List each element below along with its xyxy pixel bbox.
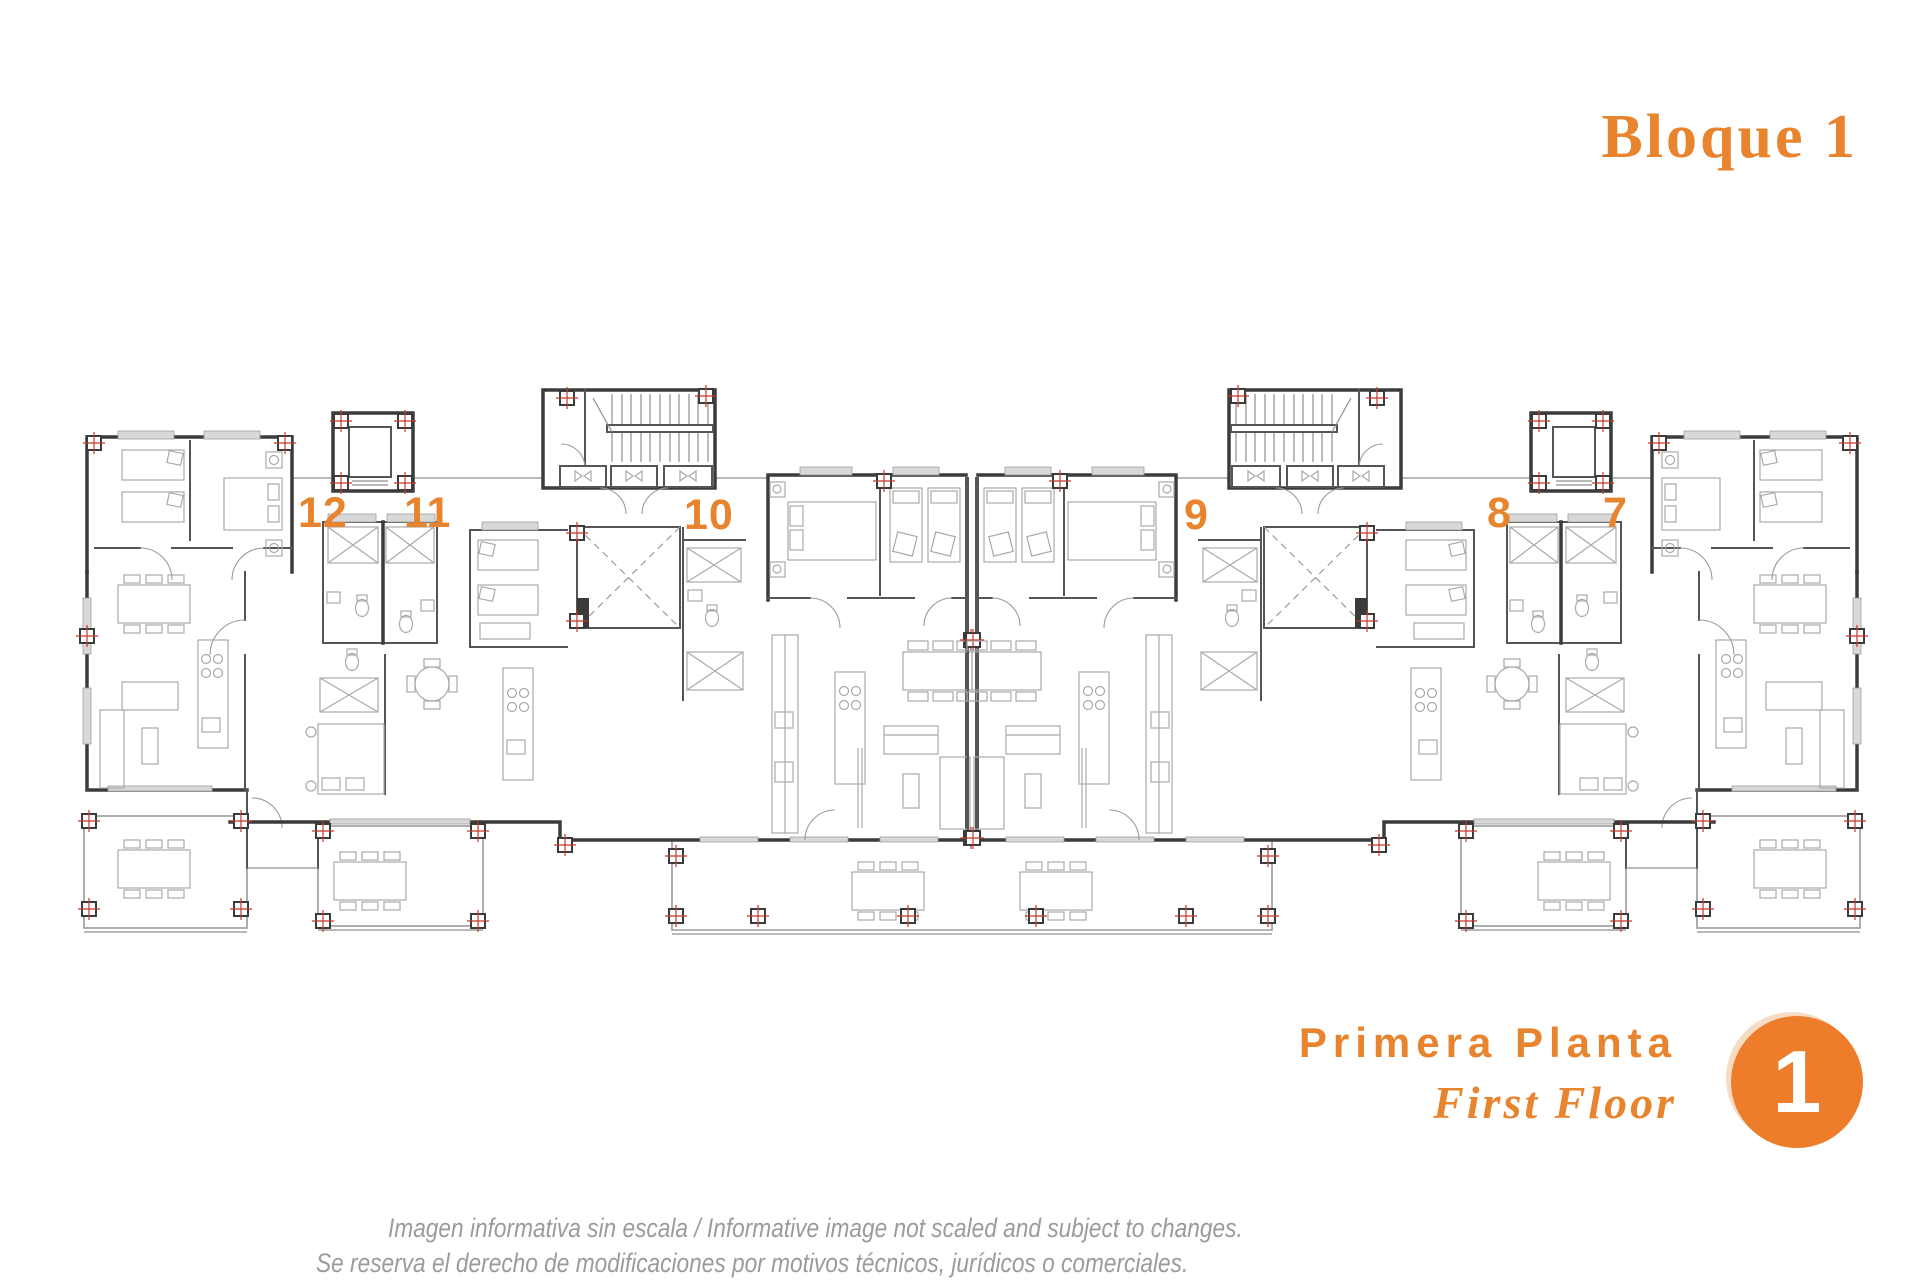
disclaimer-line-2: Se reserva el derecho de modificaciones … (316, 1247, 1188, 1280)
apartment-number-9: 9 (1184, 494, 1209, 537)
block-title: Bloque 1 (1601, 106, 1858, 168)
floor-badge: 1 (1731, 1016, 1863, 1148)
disclaimer-line-1: Imagen informativa sin escala / Informat… (388, 1212, 1243, 1246)
apartment-number-8: 8 (1487, 492, 1512, 535)
floor-label-en: First Floor (1433, 1080, 1677, 1126)
page: 12 11 10 9 8 7 Bloque 1 Primera Planta F… (0, 0, 1920, 1280)
apartment-number-7: 7 (1603, 492, 1628, 535)
apartment-number-11: 11 (404, 492, 451, 535)
floor-label-es: Primera Planta (1299, 1022, 1677, 1064)
floor-badge-number: 1 (1773, 1038, 1822, 1126)
apartment-number-10: 10 (684, 494, 734, 537)
apartment-number-12: 12 (298, 492, 348, 535)
